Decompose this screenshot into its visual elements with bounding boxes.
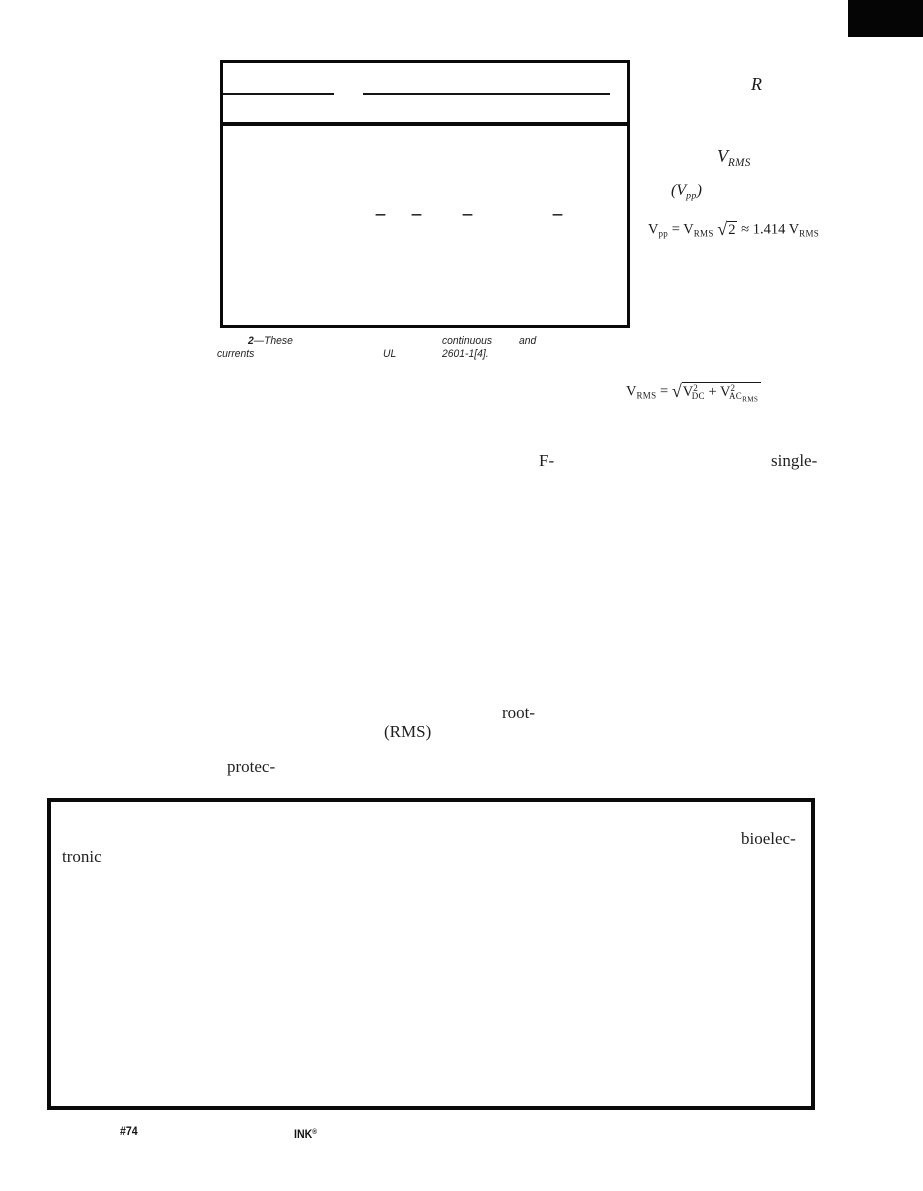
table-cell-dash: — <box>375 211 385 219</box>
equation-vpp: Vpp = VRMS √2 ≈ 1.414 VRMS <box>648 219 819 240</box>
registered-trademark-icon: ® <box>312 1129 317 1136</box>
body-text-fragment: F- <box>539 452 554 469</box>
radical-sign: √ <box>717 219 727 239</box>
footer-magazine-name: INK® <box>294 1127 317 1141</box>
data-table-frame: — — — — <box>220 60 630 328</box>
body-text-fragment: (RMS) <box>384 723 431 740</box>
equation-vrms: VRMS = √V2DC + V2ACRMS <box>626 381 761 402</box>
sidebar-text-fragment: tronic <box>62 848 102 865</box>
table-header-underline-right <box>363 93 610 95</box>
body-text-fragment: single- <box>771 452 817 469</box>
variable-r: R <box>751 74 762 95</box>
table-caption-fragment: currents <box>217 349 254 360</box>
table-cell-dash: — <box>552 211 562 219</box>
table-caption-fragment: UL <box>383 349 396 360</box>
table-cell-dash: — <box>462 211 472 219</box>
table-caption-fragment: 2601-1[4]. <box>442 349 489 360</box>
table-caption-fragment: continuous <box>442 336 492 347</box>
footer-issue-number: #74 <box>120 1127 138 1138</box>
variable-vpp: (Vpp) <box>671 182 702 200</box>
corner-header-block <box>848 0 923 37</box>
body-text-fragment: protec- <box>227 758 275 775</box>
variable-vrms: VRMS <box>717 146 751 167</box>
sidebar-text-fragment: bioelec- <box>741 830 796 847</box>
table-header-divider <box>223 122 627 126</box>
scanned-document-page: — — — — 2—These continuous and currents … <box>0 0 923 1191</box>
table-caption-fragment: and <box>519 336 536 347</box>
radical-sign: √ <box>672 381 682 401</box>
table-header-underline-left <box>223 93 334 95</box>
body-text-fragment: root- <box>502 704 535 721</box>
sidebar-box <box>47 798 815 1110</box>
table-caption-fragment: 2—These <box>248 336 293 347</box>
table-cell-dash: — <box>411 211 421 219</box>
